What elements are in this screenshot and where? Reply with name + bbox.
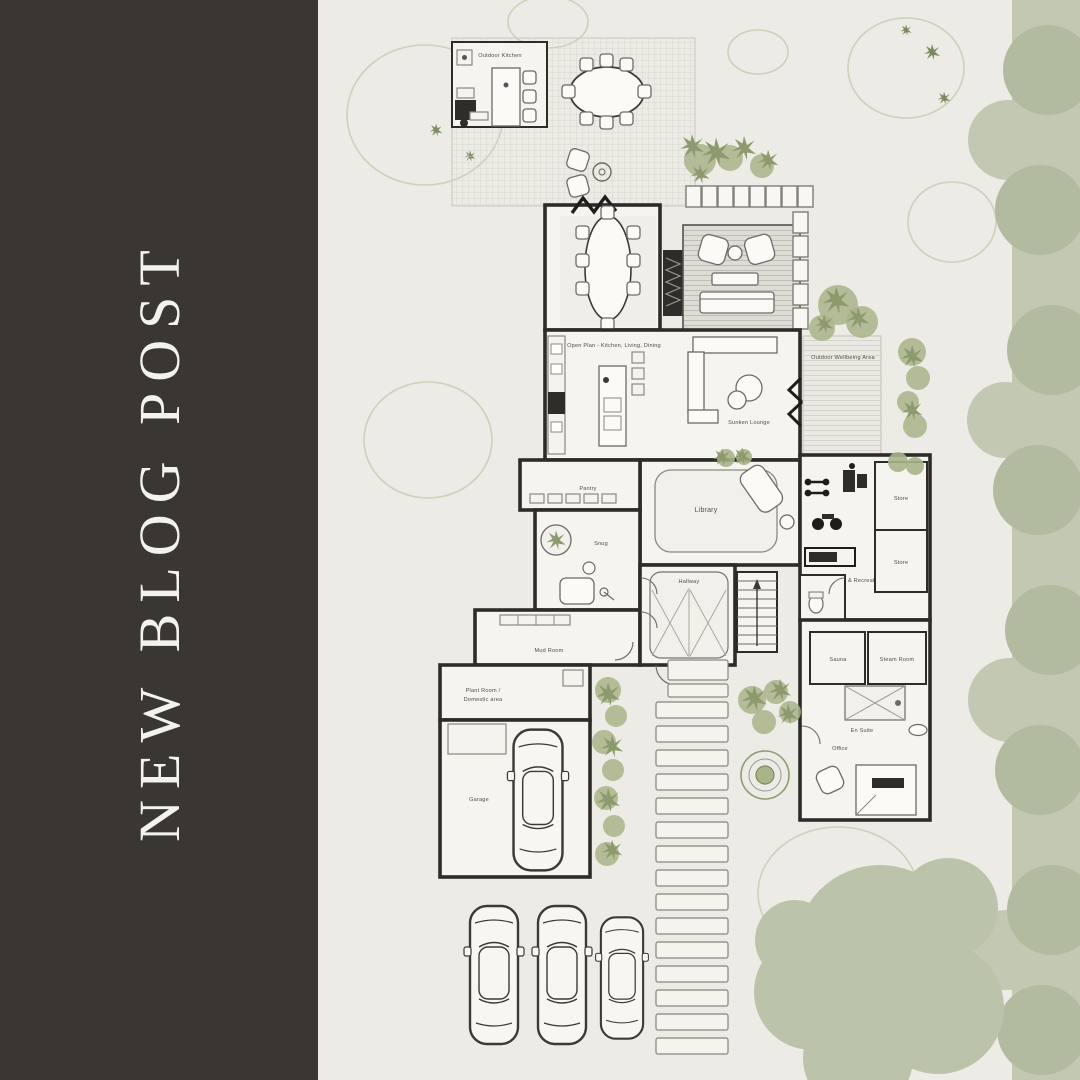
room-garage: Garage bbox=[440, 720, 590, 877]
label-store-2: Store bbox=[894, 560, 908, 566]
room-library: Library bbox=[640, 460, 800, 565]
courtyard-tree bbox=[741, 751, 789, 799]
fireplace bbox=[663, 250, 684, 316]
entry-path bbox=[656, 660, 728, 1054]
room-plant: Plant Room / Domestic area bbox=[440, 665, 590, 720]
label-library: Library bbox=[695, 507, 718, 514]
label-office: Office bbox=[832, 746, 848, 752]
room-gym: Gym & Recreation Suite Store Store bbox=[800, 455, 930, 620]
label-plant-room-1: Plant Room / bbox=[466, 688, 501, 694]
room-mud: Mud Room bbox=[475, 610, 640, 665]
label-snug: Snug bbox=[594, 541, 608, 547]
room-dining bbox=[545, 197, 660, 331]
label-outdoor-kitchen: Outdoor Kitchen bbox=[478, 53, 521, 59]
parked-cars bbox=[464, 906, 648, 1044]
label-garage: Garage bbox=[469, 797, 489, 803]
outdoor-kitchen: Outdoor Kitchen bbox=[452, 42, 547, 127]
label-open-plan: Open Plan - Kitchen, Living, Dining bbox=[567, 343, 661, 349]
label-steam-room: Steam Room bbox=[880, 657, 915, 663]
room-kitchen-living: Open Plan - Kitchen, Living, Dining Sunk… bbox=[545, 330, 802, 460]
post-canvas: Outdoor Kitchen bbox=[0, 0, 1080, 1080]
room-pantry: Pantry bbox=[520, 460, 640, 510]
label-hallway: Hallway bbox=[679, 579, 700, 585]
left-panel: NEW BLOG POST bbox=[0, 0, 318, 1080]
label-wellbeing: Outdoor Wellbeing Area bbox=[811, 355, 875, 361]
page: { "left_panel": { "title": "NEW BLOG POS… bbox=[0, 0, 1080, 1080]
label-en-suite: En Suite bbox=[851, 728, 874, 734]
deck-terrace bbox=[683, 225, 800, 332]
label-plant-room-2: Domestic area bbox=[464, 697, 503, 703]
label-sauna: Sauna bbox=[829, 657, 847, 663]
label-store-1: Store bbox=[894, 496, 908, 502]
room-wellness-office: Sauna Steam Room En Suite Office bbox=[800, 620, 930, 820]
wellbeing-terrace: Outdoor Wellbeing Area bbox=[803, 336, 881, 458]
room-snug: Snug bbox=[535, 510, 640, 610]
label-mud-room: Mud Room bbox=[535, 648, 564, 654]
staircase bbox=[737, 572, 777, 652]
blog-title: NEW BLOG POST bbox=[126, 239, 193, 842]
label-sunken-lounge: Sunken Lounge bbox=[728, 420, 770, 426]
label-pantry: Pantry bbox=[579, 486, 596, 492]
shrub-mass bbox=[754, 858, 1004, 1080]
